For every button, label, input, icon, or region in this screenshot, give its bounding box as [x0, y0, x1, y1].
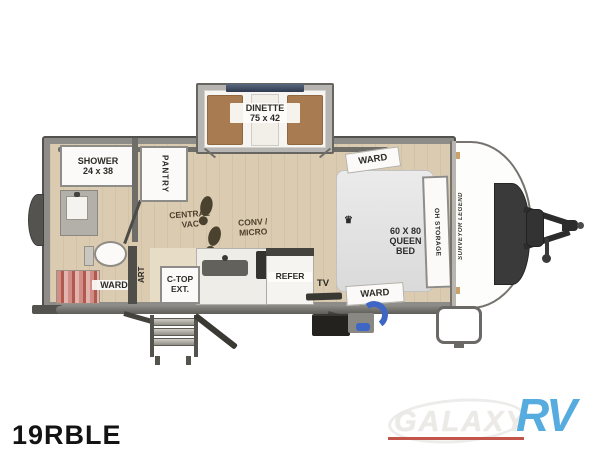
hitch-coupler: [562, 220, 578, 231]
step-leg: [155, 356, 160, 365]
awning-rail: [56, 306, 454, 314]
entry-step: [152, 338, 198, 346]
pantry-label: PANTRY: [160, 155, 169, 193]
entry-handrail: [193, 313, 238, 350]
kitchen-sink: [202, 260, 248, 276]
kitchen-faucet-icon: [222, 255, 228, 261]
propane-tanks: [526, 209, 544, 247]
hitch-ball: [577, 222, 584, 229]
art-label: ART: [138, 250, 150, 300]
toilet-tank: [84, 246, 94, 266]
dinette-label: DINETTE 75 x 42: [230, 103, 300, 123]
bath-sink: [66, 196, 88, 220]
front-storage-compartment: [436, 306, 482, 344]
shower-stall: SHOWER 24 x 38: [60, 145, 136, 187]
bed-size-label: 60 X 80 QUEEN BED: [385, 226, 426, 256]
art-cabinet: [128, 246, 137, 304]
floorplan-image: DINETTE 75 x 42 SHOWER 24 x 38 WARD PANT…: [0, 0, 614, 460]
step-leg: [186, 356, 191, 365]
countertop-extension: C-TOP EXT.: [160, 266, 200, 304]
ward-bottom-label: WARD: [360, 288, 390, 301]
conv-micro-label: CONV / MICRO: [222, 216, 285, 238]
compartment-latch: [454, 343, 464, 348]
utility-box: [312, 314, 350, 336]
refrigerator-top: [266, 248, 314, 256]
overhead-storage: OH STORAGE: [422, 176, 452, 289]
clearance-light-icon: [456, 287, 460, 294]
bed-label: ♛ 60 X 80 QUEEN BED: [344, 206, 426, 236]
ward-top-label: WARD: [358, 153, 388, 168]
entry-step: [152, 328, 198, 336]
brand-label: SURVEYOR LEGEND: [458, 192, 464, 260]
logo-underline: [388, 437, 524, 440]
dinette-window: [226, 84, 304, 92]
tv-label: TV: [312, 279, 334, 290]
rock-guard-panel: [494, 183, 530, 285]
crown-icon: ♛: [344, 216, 353, 226]
refer-label: REFER: [268, 272, 312, 282]
blue-hose-end: [356, 323, 370, 331]
bathroom-wall: [132, 138, 138, 242]
spare-tire: [28, 194, 44, 246]
pantry-cabinet: PANTRY: [140, 146, 188, 202]
bath-faucet-icon: [74, 192, 80, 197]
clearance-light-icon: [456, 152, 460, 159]
step-rail-left: [150, 315, 154, 357]
shower-label: SHOWER 24 x 38: [78, 156, 119, 176]
tv: [306, 292, 342, 300]
oh-storage-label: OH STORAGE: [433, 208, 442, 257]
brand-badge: SURVEYOR LEGEND: [452, 170, 470, 282]
logo-galaxy-text: GALAXY: [394, 406, 527, 439]
entry-step: [152, 318, 198, 326]
jack-wheel: [542, 254, 551, 263]
ctop-ext-label: C-TOP EXT.: [167, 275, 193, 294]
toilet: [94, 241, 127, 267]
floorplan-model-title: 19RBLE: [12, 420, 122, 451]
logo-rv-text: RV: [516, 392, 574, 438]
